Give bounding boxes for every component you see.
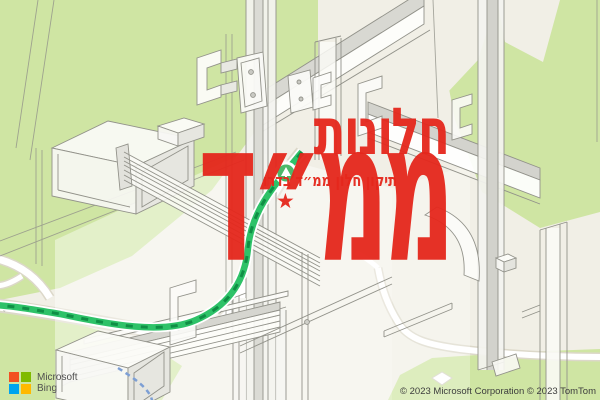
map-copyright: © 2023 Microsoft Corporation © 2023 TomT…: [400, 386, 596, 397]
logo-line-microsoft: Microsoft: [37, 372, 78, 383]
microsoft-bing-logo[interactable]: Microsoft Bing: [9, 372, 78, 394]
bing-logo-text: Microsoft Bing: [37, 372, 78, 394]
logo-line-bing: Bing: [37, 383, 57, 394]
bing-map-screenshot: ut: [0, 0, 600, 400]
microsoft-logo-icon: [9, 372, 31, 394]
watermark-title-line2: ממ״ד: [198, 96, 449, 291]
